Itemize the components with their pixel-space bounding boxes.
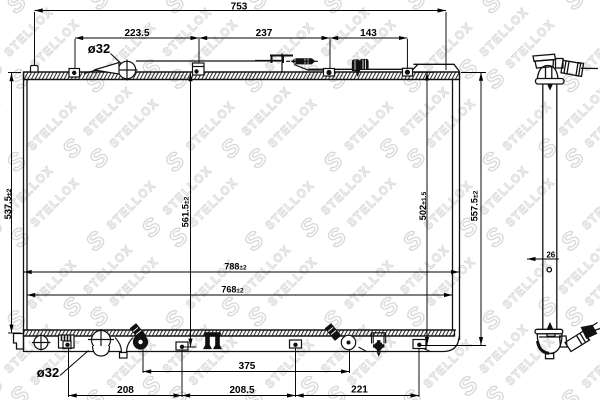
svg-text:753: 753 xyxy=(231,2,248,13)
svg-text:237: 237 xyxy=(256,28,273,39)
svg-text:26: 26 xyxy=(546,251,555,260)
svg-text:208: 208 xyxy=(117,385,134,396)
svg-text:143: 143 xyxy=(360,28,377,39)
svg-text:223.5: 223.5 xyxy=(124,28,149,39)
svg-text:ø32: ø32 xyxy=(88,41,110,56)
svg-text:208.5: 208.5 xyxy=(229,385,254,396)
svg-text:221: 221 xyxy=(351,385,368,396)
svg-text:ø32: ø32 xyxy=(37,365,59,380)
svg-text:375: 375 xyxy=(239,361,256,372)
